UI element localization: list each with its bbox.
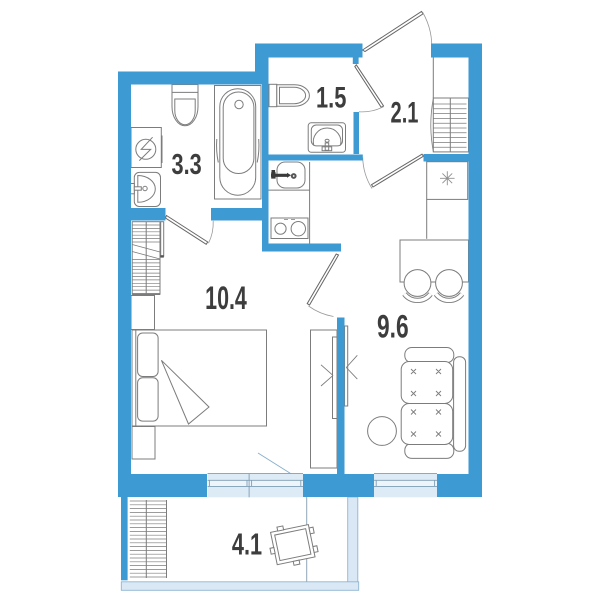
svg-text:9.6: 9.6 [377,309,409,345]
svg-text:10.4: 10.4 [205,280,247,316]
svg-text:3.3: 3.3 [172,149,202,181]
svg-text:1.5: 1.5 [316,82,346,114]
svg-text:2.1: 2.1 [391,97,419,130]
svg-text:4.1: 4.1 [232,527,262,562]
